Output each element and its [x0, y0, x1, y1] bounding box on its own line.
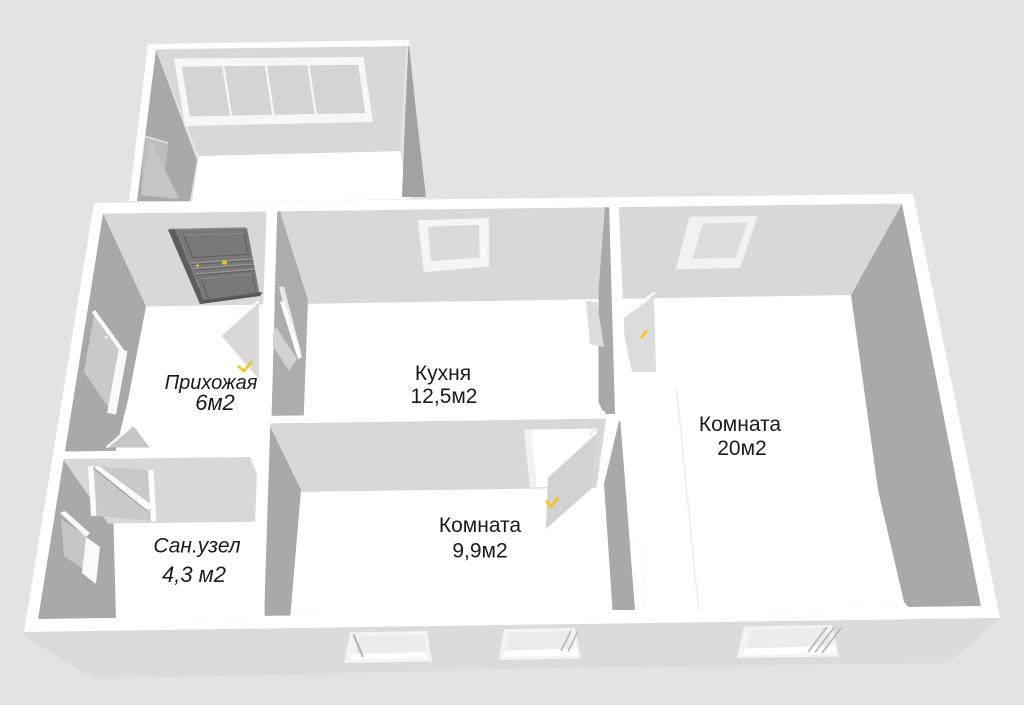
svg-text:9,9м2: 9,9м2 [452, 540, 507, 563]
svg-text:12,5м2: 12,5м2 [411, 385, 478, 408]
svg-text:6м2: 6м2 [195, 390, 235, 415]
svg-text:Кухня: Кухня [415, 362, 471, 385]
svg-text:4,3 м2: 4,3 м2 [162, 562, 226, 587]
svg-text:Комната: Комната [439, 514, 522, 537]
svg-text:20м2: 20м2 [717, 437, 766, 460]
svg-text:Сан.узел: Сан.узел [153, 535, 240, 558]
svg-text:Комната: Комната [699, 413, 782, 436]
